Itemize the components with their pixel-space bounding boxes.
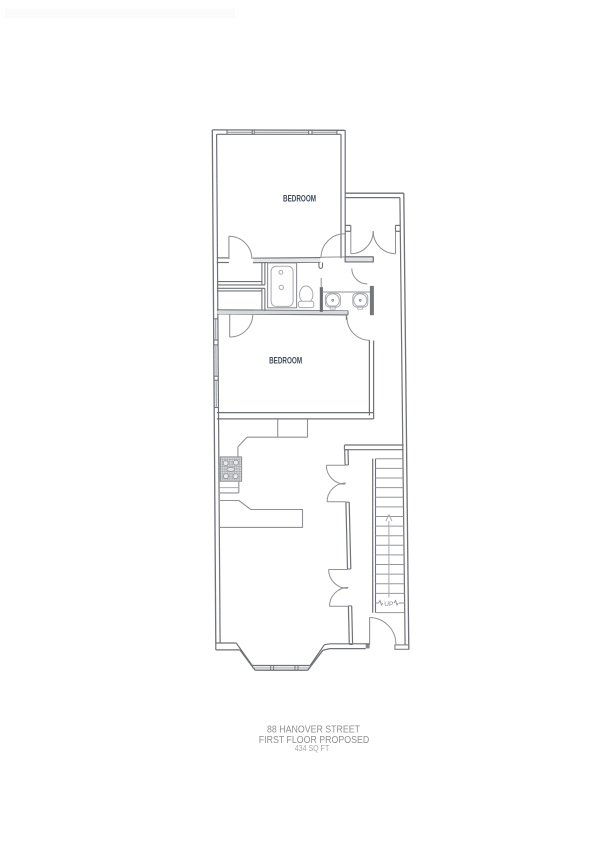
svg-text:88 HANOVER STREET: 88 HANOVER STREET xyxy=(267,724,360,735)
svg-text:BEDROOM: BEDROOM xyxy=(283,194,316,205)
svg-text:434 SQ FT: 434 SQ FT xyxy=(295,744,330,753)
svg-text:BEDROOM: BEDROOM xyxy=(269,355,302,366)
svg-text:UP: UP xyxy=(384,601,393,608)
